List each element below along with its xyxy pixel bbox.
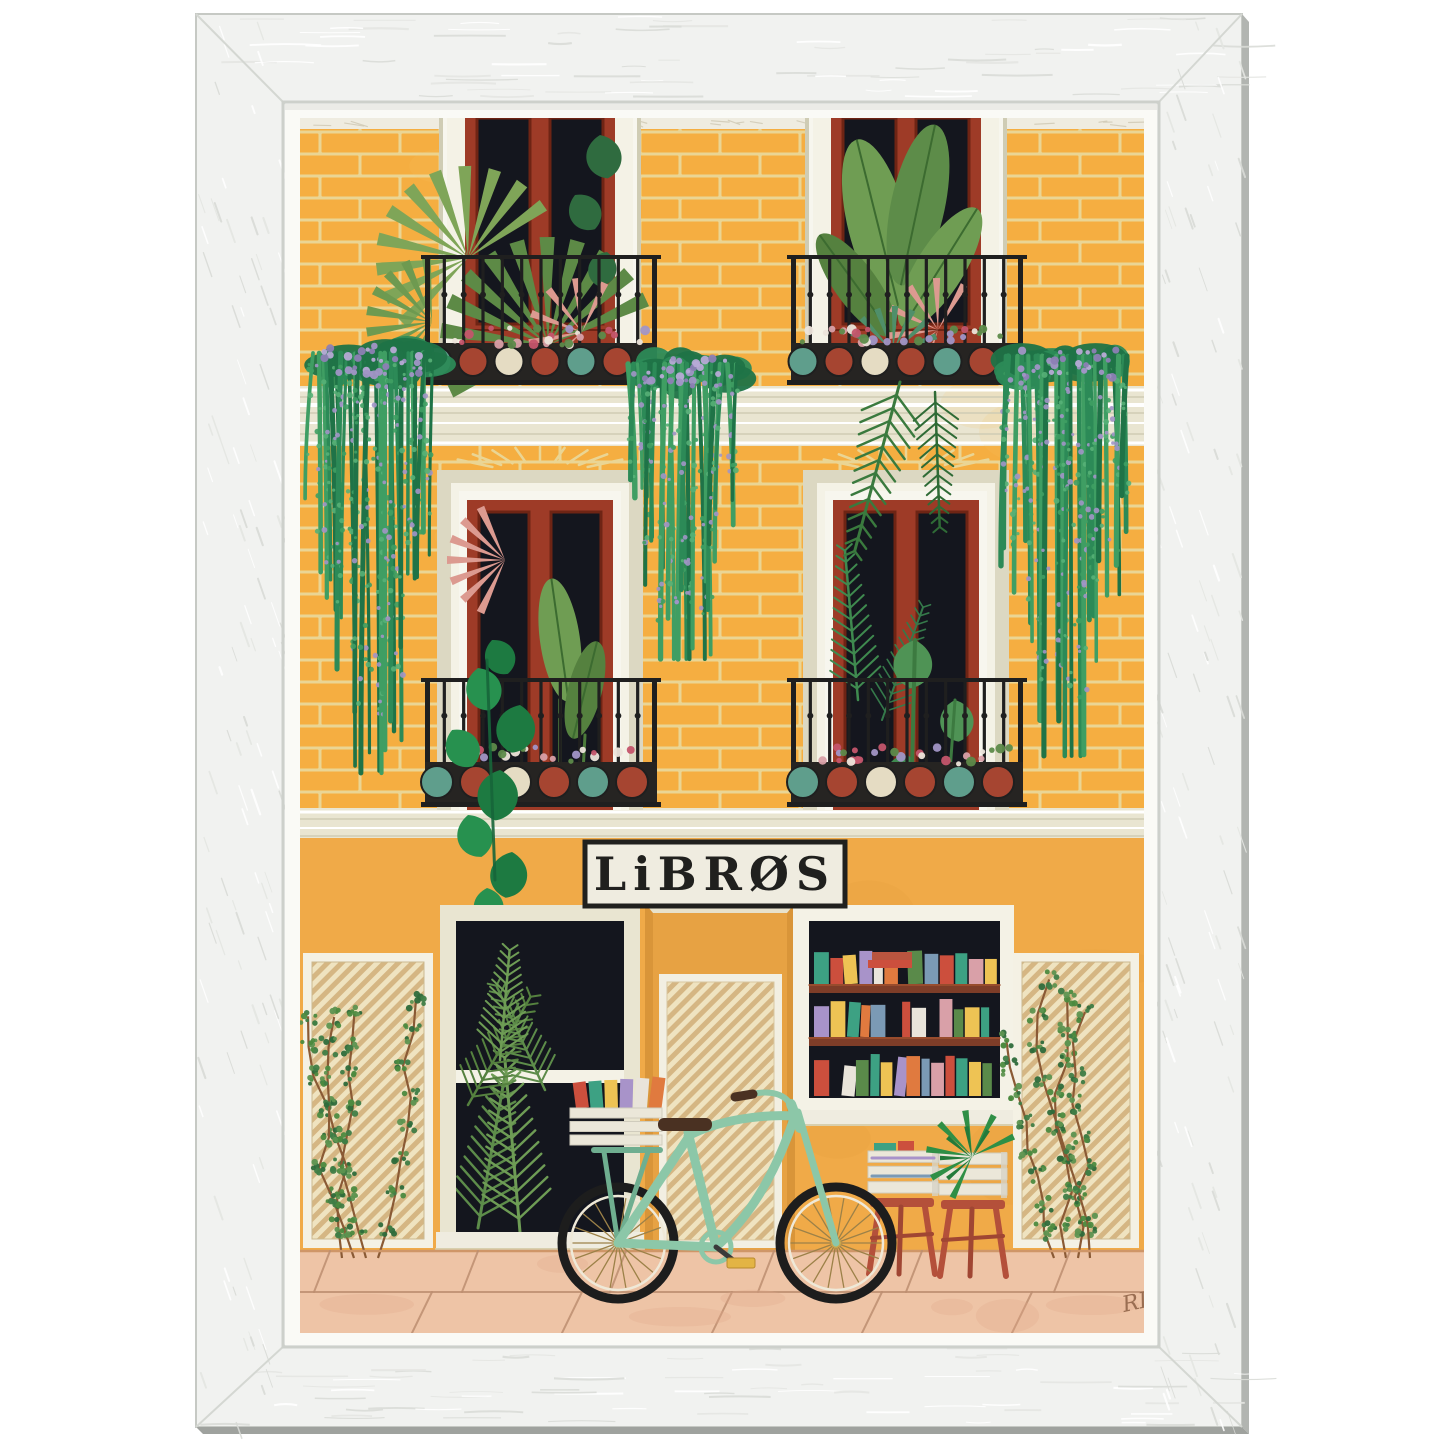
shop-door bbox=[640, 897, 800, 1250]
top-ledge bbox=[300, 118, 1144, 129]
poster-libros-facade: LiBRØS RL bbox=[262, 118, 1164, 1333]
framed-poster-mockup: LiBRØS RL bbox=[0, 0, 1445, 1445]
libros-sign: LiBRØS bbox=[585, 842, 845, 906]
frame-bottom-edge bbox=[196, 1427, 1249, 1434]
artwork-canvas: LiBRØS RL bbox=[0, 0, 1445, 1445]
sign-text: LiBRØS bbox=[594, 847, 836, 901]
trellis-right bbox=[999, 953, 1139, 1258]
trellis-left bbox=[299, 953, 433, 1258]
mat-shadow bbox=[285, 104, 1157, 110]
frame-right-edge bbox=[1242, 14, 1249, 1434]
bookshelf-window bbox=[789, 905, 1018, 1125]
